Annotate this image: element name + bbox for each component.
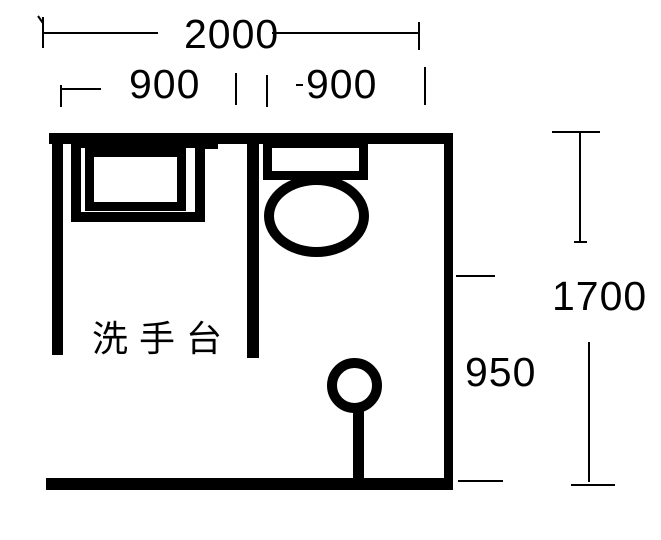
dim-2000-label: 2000 [181,14,282,55]
dim-2000-tick-right [418,22,420,50]
dim-1700-line-lower [588,342,590,482]
wall-tab [205,143,218,149]
dim-1700-line-upper [579,133,581,243]
dim-1700-tick-bottom [571,484,615,486]
wall-right [444,144,453,490]
room-label: 洗手台 [92,322,233,358]
floor-plan-drawing: 2000 900 900 1700 950 洗手台 [0,0,661,540]
wall-bottom [46,478,453,490]
shower-stem [353,409,364,478]
dim-1700-label: 1700 [549,276,650,317]
dim-950-label: 950 [462,352,539,393]
dim-950-tick-top [456,275,495,277]
dim-2000-line-right [272,32,419,34]
sink-basin-outline [85,148,186,211]
dim-1700-tick-top [552,131,600,133]
wall-divider [247,144,259,358]
dim-900-right-tick [424,67,426,105]
dim-900-middle-tick-a [235,73,237,105]
dim-900-right-label: 900 [303,64,380,105]
shower-head [327,358,382,413]
toilet-tank [263,139,368,180]
wall-left [52,144,63,355]
dim-900-left-line [61,88,101,90]
dim-950-tick-bottom [458,480,503,482]
dim-900-left-label: 900 [126,64,203,105]
dim-2000-line-left [43,32,158,34]
dim-900-middle-tick-b [266,75,268,107]
toilet-bowl [264,175,369,257]
dim-1700-nub [574,241,587,243]
